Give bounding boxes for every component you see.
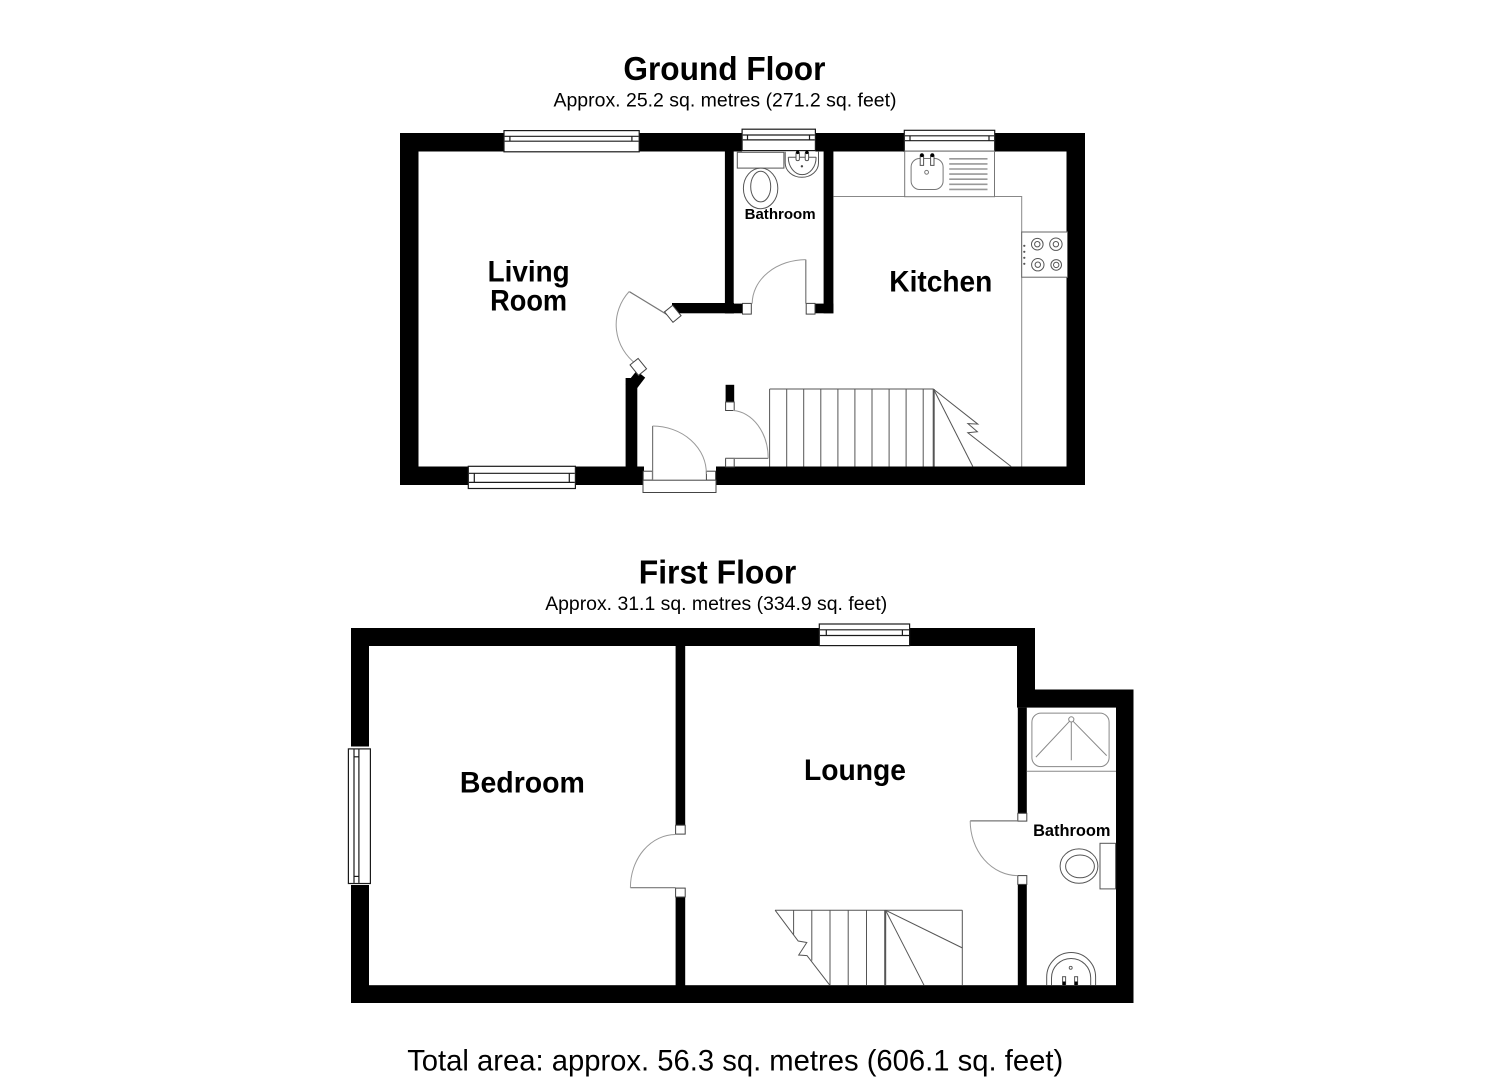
svg-text:Lounge: Lounge [804, 754, 906, 787]
svg-text:Total area: approx. 56.3 sq. m: Total area: approx. 56.3 sq. metres (606… [407, 1044, 1063, 1077]
svg-text:Kitchen: Kitchen [889, 265, 992, 298]
svg-text:Bathroom: Bathroom [1033, 821, 1110, 840]
svg-text:Approx. 31.1 sq. metres (334.9: Approx. 31.1 sq. metres (334.9 sq. feet) [545, 593, 887, 615]
svg-text:Ground Floor: Ground Floor [623, 50, 825, 87]
svg-text:Room: Room [490, 285, 567, 318]
svg-text:First Floor: First Floor [639, 553, 797, 590]
svg-text:Bedroom: Bedroom [460, 767, 585, 800]
svg-text:Living: Living [488, 255, 570, 288]
svg-text:Bathroom: Bathroom [745, 206, 816, 223]
svg-text:Approx. 25.2 sq. metres (271.2: Approx. 25.2 sq. metres (271.2 sq. feet) [554, 90, 897, 112]
